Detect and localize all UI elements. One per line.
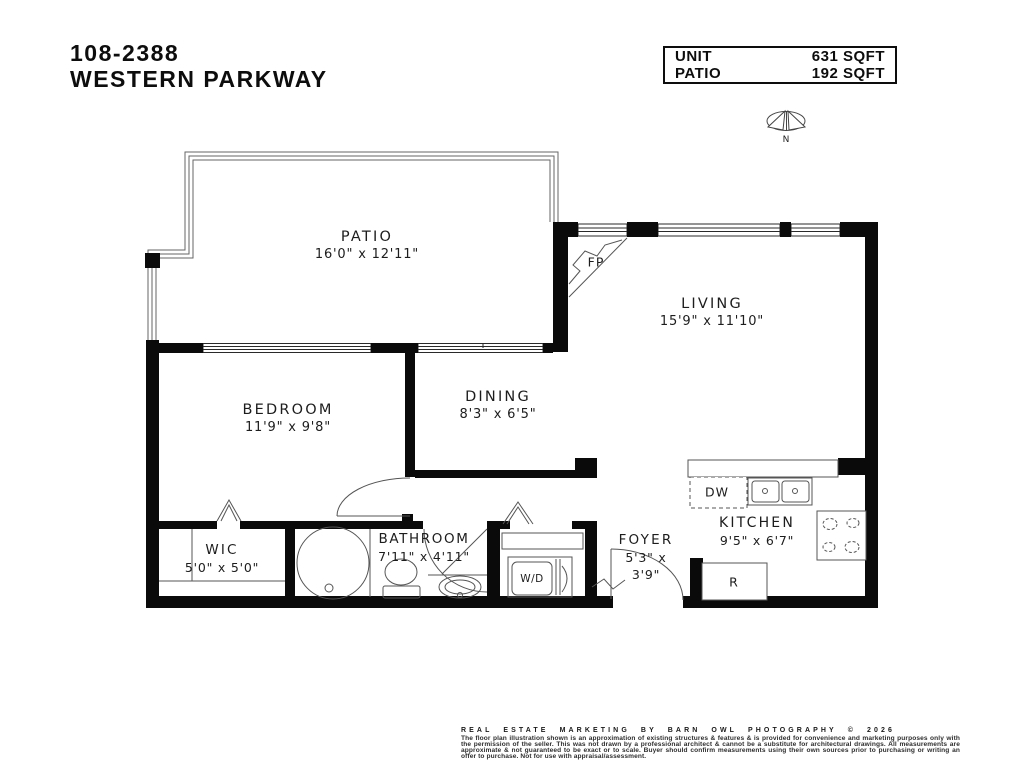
stove-outline [817, 511, 866, 560]
refrigerator-label: R [729, 575, 739, 590]
room-label-wic: WIC 5'0" x 5'0" [185, 542, 259, 576]
windows [203, 224, 840, 353]
floor-plan-page: 108-2388 WESTERN PARKWAY UNIT 631 SQFT P… [0, 0, 1024, 768]
room-label-kitchen: KITCHEN 9'5" x 6'7" [719, 515, 795, 549]
room-label-living: LIVING 15'9" x 11'10" [660, 296, 764, 330]
room-label-dining: DINING 8'3" x 6'5" [460, 389, 537, 423]
room-label-bedroom: BEDROOM 11'9" x 9'8" [242, 402, 333, 436]
room-label-patio: PATIO 16'0" x 12'11" [315, 229, 419, 263]
laundry-fixtures [502, 533, 583, 597]
footer: REAL ESTATE MARKETING BY BARN OWL PHOTOG… [461, 727, 960, 760]
north-label: N [783, 135, 790, 145]
fireplace-label: FP [588, 255, 605, 270]
footer-credit: REAL ESTATE MARKETING BY BARN OWL PHOTOG… [461, 727, 960, 734]
room-label-bathroom: BATHROOM 7'11" x 4'11" [378, 531, 470, 565]
dishwasher-label: DW [705, 485, 729, 500]
footer-disclaimer: The floor plan illustration shown is an … [461, 736, 960, 760]
room-label-foyer: FOYER 5'3" x 3'9" [619, 532, 674, 583]
washer-dryer-label: W/D [520, 573, 544, 585]
north-arrow-icon [767, 111, 805, 131]
floor-plan-drawing [0, 0, 1024, 768]
